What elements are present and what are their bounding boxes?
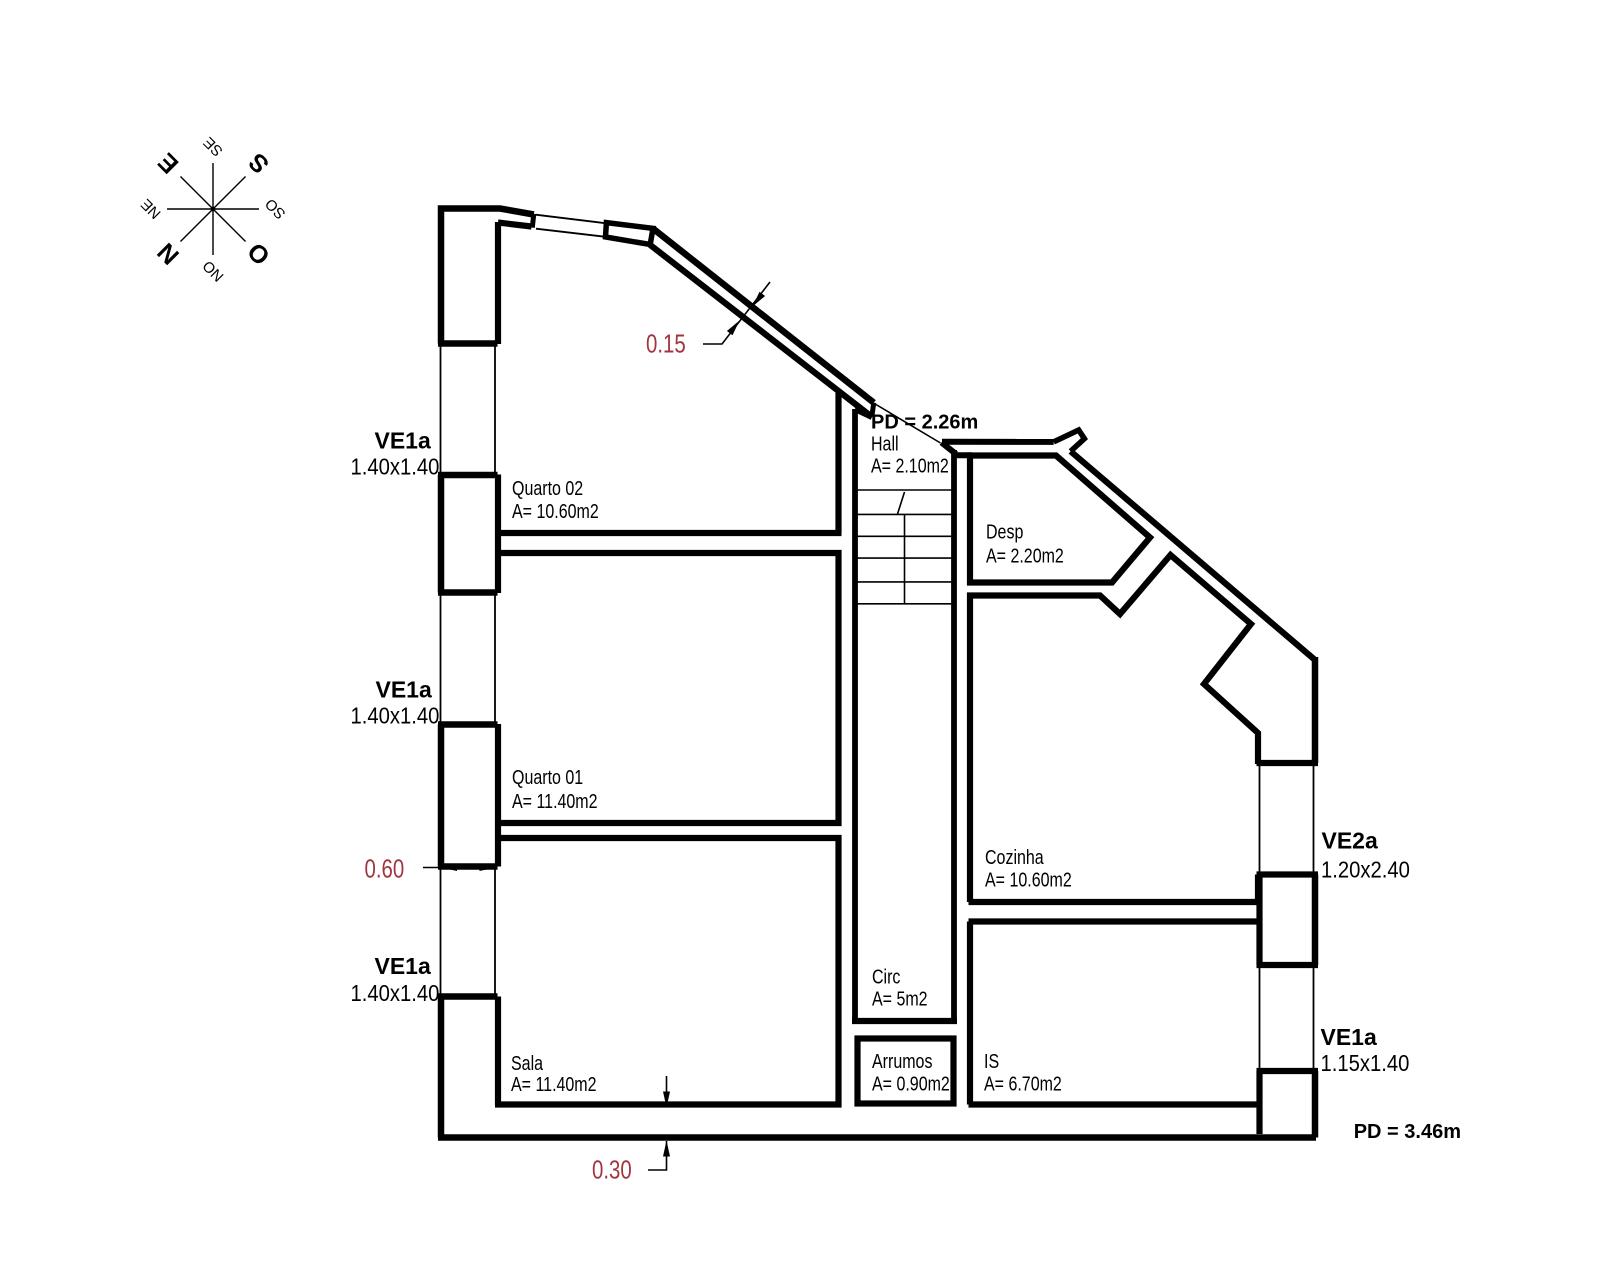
svg-text:VE1a: VE1a	[375, 427, 431, 453]
svg-text:A= 2.20m2: A= 2.20m2	[986, 545, 1064, 567]
svg-text:IS: IS	[984, 1050, 999, 1072]
svg-text:Circ: Circ	[872, 966, 900, 988]
svg-text:A= 11.40m2: A= 11.40m2	[512, 790, 598, 812]
svg-text:0.60: 0.60	[365, 854, 405, 883]
svg-text:A= 5m2: A= 5m2	[872, 988, 928, 1010]
svg-text:Sala: Sala	[511, 1052, 544, 1074]
svg-text:PD = 2.26m: PD = 2.26m	[871, 412, 978, 434]
svg-text:A= 0.90m2: A= 0.90m2	[872, 1073, 950, 1095]
svg-text:VE1a: VE1a	[1321, 1024, 1377, 1050]
svg-text:Quarto 01: Quarto 01	[512, 766, 583, 788]
svg-text:Quarto 02: Quarto 02	[512, 477, 583, 499]
svg-text:0.15: 0.15	[646, 329, 686, 358]
svg-text:A= 10.60m2: A= 10.60m2	[985, 869, 1072, 891]
svg-text:1.40x1.40: 1.40x1.40	[351, 453, 440, 480]
svg-text:A= 10.60m2: A= 10.60m2	[512, 500, 599, 522]
svg-text:VE2a: VE2a	[1322, 828, 1378, 854]
svg-text:1.40x1.40: 1.40x1.40	[351, 980, 440, 1007]
svg-text:PD = 3.46m: PD = 3.46m	[1354, 1121, 1461, 1143]
svg-text:1.40x1.40: 1.40x1.40	[351, 702, 440, 729]
svg-text:Cozinha: Cozinha	[985, 846, 1045, 868]
svg-text:Hall: Hall	[871, 433, 899, 455]
svg-text:1.20x2.40: 1.20x2.40	[1321, 856, 1410, 883]
svg-text:0.30: 0.30	[592, 1155, 632, 1184]
svg-text:A= 6.70m2: A= 6.70m2	[984, 1073, 1062, 1095]
svg-text:1.15x1.40: 1.15x1.40	[1321, 1050, 1410, 1077]
svg-text:Arrumos: Arrumos	[872, 1050, 932, 1072]
svg-text:A= 11.40m2: A= 11.40m2	[511, 1073, 597, 1095]
svg-text:A= 2.10m2: A= 2.10m2	[871, 455, 949, 477]
svg-text:VE1a: VE1a	[375, 953, 431, 979]
svg-text:Desp: Desp	[986, 521, 1023, 543]
svg-text:VE1a: VE1a	[376, 677, 432, 703]
